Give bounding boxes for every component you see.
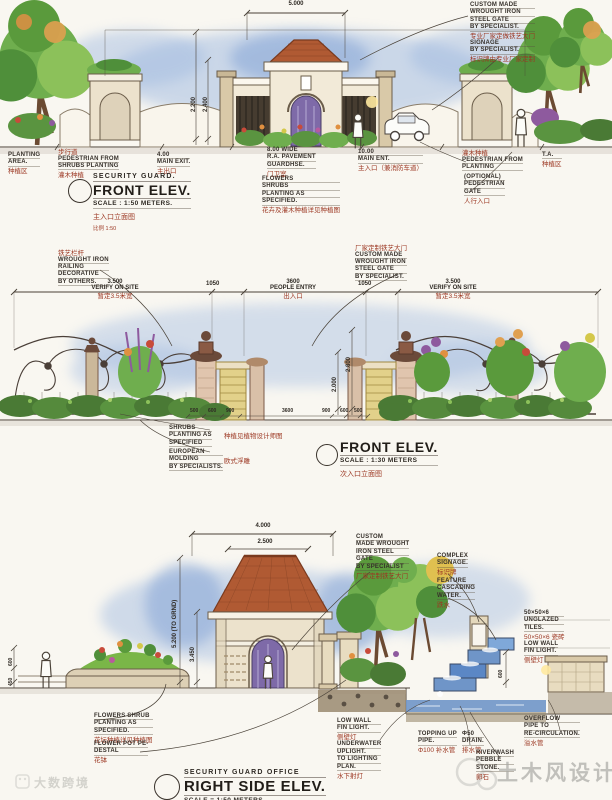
side-pavilion-left [87, 59, 142, 140]
dim-2500: 2.500 [240, 539, 290, 545]
label-flowers-shrub-planting: FLOWERS SHRUBPLANTING ASSPECIFIED.花坛种植详见… [94, 713, 153, 744]
annotation-line: 铁艺栏杆 [58, 250, 109, 257]
annotation-line: PLANTING AS [94, 720, 153, 727]
dim-1050-left: 1050 [206, 281, 219, 287]
watercolor-elevation-sheet: PLANTINGAREA.种植区 步行道PEDESTRIAN FROMSHRUB… [0, 0, 612, 800]
annotation-line: GUARDHSE. [267, 162, 316, 169]
annotation-line: 标识牌 [437, 569, 468, 576]
title-bullet-circle [154, 774, 180, 800]
annotation-line: 1050 [206, 281, 219, 287]
annotation-line: STEEL GATE [470, 17, 535, 24]
label-pedestrian-gate: (OPTIONAL)PEDESTRIANGATE人行入口 [464, 174, 505, 205]
annotation-line: 灌木种植 [462, 150, 523, 157]
annotation-line: DECORATIVE [58, 271, 109, 278]
annotation-line: 8.00 WIDE [267, 147, 316, 154]
annotation-line: 溢水管 [524, 740, 580, 747]
title-caption-cn-2: 次入口立面图 [340, 469, 438, 479]
annotation-line: BY SPECIALIST. [355, 274, 407, 281]
dim-people-entry: 3600PEOPLE ENTRY出入口 [248, 279, 338, 300]
annotation-line: SHRUBS PLANTING [58, 163, 119, 170]
annotation-line: OVERFLOW [524, 716, 580, 723]
annotation-line: GATE [464, 189, 505, 196]
annotation-line: DRAIN. [462, 738, 484, 745]
annotation-line: VERIFY ON SITE [70, 285, 160, 291]
annotation-line: FIN LIGHT. [337, 725, 381, 732]
dim-2400: 2.400 [203, 97, 209, 112]
annotation-line: 花钵 [94, 757, 148, 764]
label-custom-gate: CUSTOM MADEWROUGHT IRONSTEEL GATEBY SPEC… [470, 2, 535, 40]
annotation-line: 种植区 [542, 161, 562, 168]
annotation-line: 厂家定制铁艺大门 [356, 573, 409, 580]
wall-lamp-glow [541, 665, 551, 675]
label-low-wall-underwater-uplight: LOW WALLFIN LIGHT.侧壁灯UNDERWATERUPLIGHT.T… [337, 718, 381, 780]
annotation-line: 标识牌由专业厂家定制 [470, 56, 535, 63]
dim-600a: 600 [208, 408, 216, 414]
annotation-line: 1050 [358, 281, 371, 287]
annotation-line: CUSTOM MADE [355, 252, 407, 259]
annotation-line: VERIFY ON SITE [408, 285, 498, 291]
annotation-line: 主入口（兼消防车道） [358, 165, 423, 172]
label-shrubs-specified-cn: 种植见植物设计师图 [224, 431, 283, 440]
annotation-line: UNGLAZED [524, 617, 564, 624]
annotation-line: PEDESTRIAN [464, 181, 505, 188]
annotation-line: GATE [356, 556, 409, 563]
panel3-right-side-elev-art [0, 531, 612, 789]
dim-3500-left: 3.500VERIFY ON SITE暂定3.5米宽 [70, 279, 160, 300]
title-right-side-elev: RIGHT SIDE ELEV. [184, 778, 326, 796]
annotation-line: LOW WALL [337, 718, 381, 725]
annotation-line: DESTAL [94, 748, 148, 755]
annotation-line: COMPLEX [437, 553, 468, 560]
title-block-front-elev-main: SECURITY GUARD. FRONT ELEV. SCALE : 1:50… [93, 173, 191, 232]
label-topping-up-pipe: TOPPING UPPIPE.Φ100 补水管 [418, 731, 457, 754]
title-front-elev-2: FRONT ELEV. [340, 439, 438, 456]
watermark-logo-left [16, 775, 29, 788]
annotation-line: SPECIFIED. [94, 728, 153, 735]
title-scale: SCALE : 1:50 METERS. [93, 199, 191, 209]
annotation-line: WATER. [437, 593, 475, 600]
annotation-line: (OPTIONAL) [464, 174, 505, 181]
annotation-line: FIN LIGHT. [524, 648, 558, 655]
label-complex-signage: COMPLEXSIGNAGE.标识牌 [437, 553, 468, 576]
annotation-line: WROUGHT IRON [470, 9, 535, 16]
annotation-line: MAIN ENT. [358, 156, 423, 163]
annotation-line: SHRUBS [262, 183, 340, 190]
label-custom-gate-p3: CUSTOMMADE WROUGHTIRON STEELGATEBY SPECI… [356, 534, 409, 580]
annotation-line: UPLIGHT. [337, 749, 381, 756]
label-european-molding: EUROPEANMOLDINGBY SPECIALISTS. [169, 449, 223, 471]
title-scale-2: SCALE : 1:30 METERS [340, 456, 438, 466]
annotation-line: 水下射灯 [337, 773, 381, 780]
annotation-line: AREA. [8, 159, 40, 166]
dim-5000: 5.000 [278, 1, 314, 7]
annotation-line: EUROPEAN [169, 449, 223, 456]
side-pavilion-right [459, 59, 514, 140]
annotation-line: WROUGHT IRON [355, 259, 407, 266]
annotation-line: IRON STEEL [356, 549, 409, 556]
annotation-line: MAIN EXIT. [157, 159, 190, 166]
label-overflow-pipe: OVERFLOWPIPE TORE-CIRCULATION.溢水管 [524, 716, 580, 747]
annotation-line: PLAN. [337, 764, 381, 771]
title-caption-cn: 主入口立面图 [93, 212, 191, 222]
annotation-line: FLOWERS SHRUB [94, 713, 153, 720]
annotation-line: SIGNAGE [470, 40, 535, 47]
annotation-line: PEDESTRIAN FROM [58, 156, 119, 163]
annotation-line: 跌水 [437, 602, 475, 609]
label-signage: SIGNAGEBY SPECIALIST.标识牌由专业厂家定制 [470, 40, 535, 63]
label-main-exit: 4.00MAIN EXIT.主出口 [157, 152, 190, 175]
title-security-guard-office: SECURITY GUARD OFFICE [184, 769, 326, 778]
annotation-line: T.A. [542, 152, 562, 159]
title-bullet-circle [68, 179, 92, 203]
title-bullet-circle [316, 444, 338, 466]
annotation-line: PLANTING [8, 152, 40, 159]
annotation-line: 暂定3.5米宽 [408, 293, 498, 300]
annotation-line: BY SPECIALIST. [470, 47, 535, 54]
title-block-right-side-elev: SECURITY GUARD OFFICE RIGHT SIDE ELEV. S… [184, 769, 326, 800]
annotation-line: TILES. [524, 625, 564, 632]
dim-2000: 2.000 [332, 377, 338, 392]
dim-900a: 900 [226, 408, 234, 414]
dim-3500-right: 3.500VERIFY ON SITE暂定3.5米宽 [408, 279, 498, 300]
annotation-line: BY SPECIALIST. [470, 24, 535, 31]
title-block-front-elev-secondary: FRONT ELEV. SCALE : 1:30 METERS 次入口立面图 [340, 439, 438, 479]
annotation-line: WROUGHT IRON [58, 257, 109, 264]
annotation-line: Φ100 补水管 [418, 747, 457, 754]
label-guardhouse-pavement: 8.00 WIDER.A. PAVEMENTGUARDHSE.门卫室 [267, 147, 316, 178]
dim-1050-right: 1050 [358, 281, 371, 287]
annotation-line: SPECIFIED [169, 440, 212, 447]
watermark-bottom-right: 土木风设计 [497, 757, 612, 787]
annotation-line: Φ50 [462, 731, 484, 738]
annotation-line: SHRUBS [169, 425, 212, 432]
label-planting-area: PLANTINGAREA.种植区 [8, 152, 40, 175]
annotation-line: BY SPECIALISTS. [169, 464, 223, 471]
label-main-entry: 10.00MAIN ENT.主入口（兼消防车道） [358, 149, 423, 172]
label-flowers-shrubs: FLOWERSSHRUBSPLANTING ASSPECIFIED.花卉及灌木种… [262, 176, 340, 214]
watermark-bottom-left: 大数跨境 [34, 774, 90, 791]
annotation-line: 4.00 [157, 152, 190, 159]
annotation-line: TO LIGHTING [337, 756, 381, 763]
elevation-artwork [0, 0, 612, 800]
dim-500a: 500 [190, 408, 198, 414]
annotation-line: 出入口 [248, 293, 338, 300]
dim-600b: 600 [340, 408, 348, 414]
annotation-line: CUSTOM MADE [470, 2, 535, 9]
title-front-elev: FRONT ELEV. [93, 182, 191, 199]
annotation-line: R.A. PAVEMENT [267, 154, 316, 161]
dim-450-left: 450 [8, 678, 14, 686]
annotation-line: 侧壁灯 [524, 657, 558, 664]
annotation-line: 50×50×6 瓷砖 [524, 634, 564, 641]
person-figure [41, 652, 51, 688]
title-caption-cn2: 比例 1:50 [93, 224, 191, 232]
annotation-line: TOPPING UP [418, 731, 457, 738]
annotation-line: FLOWER POT PE- [94, 741, 148, 748]
annotation-line: PEOPLE ENTRY [248, 285, 338, 291]
dim-5200: 5.200 (TO GRND) [172, 600, 178, 648]
annotation-line: MOLDING [169, 456, 223, 463]
dim-2800: 2.800 [346, 357, 352, 372]
label-european-molding-cn: 欧式浮雕 [224, 456, 250, 465]
annotation-line: 步行道 [58, 149, 119, 156]
label-custom-gate-p2: 厂家定制铁艺大门CUSTOM MADEWROUGHT IRONSTEEL GAT… [355, 243, 407, 281]
title-security-guard: SECURITY GUARD. [93, 173, 191, 182]
annotation-line: PLANTING AS [262, 191, 340, 198]
low-wall [541, 656, 612, 714]
annotation-line: PLANTING [462, 164, 523, 171]
annotation-line: 种植见植物设计师图 [224, 433, 283, 440]
annotation-line: STEEL GATE [355, 266, 407, 273]
dim-2200: 2.200 [191, 97, 197, 112]
annotation-line: RAILING [58, 264, 109, 271]
annotation-line: PEDESTRIAN FROM [462, 157, 523, 164]
annotation-line: 暂定3.5米宽 [70, 293, 160, 300]
annotation-line: SPECIFIED. [262, 198, 340, 205]
annotation-line: MADE WROUGHT [356, 541, 409, 548]
label-cascading-water: FEATURECASCADINGWATER.跌水 [437, 578, 475, 609]
annotation-line: 50×50×6 [524, 610, 564, 617]
dim-3600: 3600 [282, 408, 293, 414]
annotation-line: FLOWERS [262, 176, 340, 183]
label-unglazed-tiles: 50×50×6UNGLAZEDTILES.50×50×6 瓷砖 [524, 610, 564, 641]
annotation-line: SIGNAGE. [437, 560, 468, 567]
annotation-line: 人行入口 [464, 198, 505, 205]
annotation-line: CASCADING [437, 585, 475, 592]
annotation-line: CUSTOM [356, 534, 409, 541]
annotation-line: UNDERWATER [337, 741, 381, 748]
label-flower-pot-pedestal: FLOWER POT PE-DESTAL花钵 [94, 741, 148, 764]
dim-600-right: 600 [498, 670, 504, 678]
annotation-line: PIPE. [418, 738, 457, 745]
annotation-line: PIPE TO [524, 723, 580, 730]
dim-3450: 3.450 [190, 647, 196, 662]
label-low-wall-fin-light-right: LOW WALLFIN LIGHT.侧壁灯 [524, 641, 558, 664]
dim-600-left: 600 [8, 658, 14, 666]
annotation-line: RE-CIRCULATION. [524, 731, 580, 738]
annotation-line: LOW WALL [524, 641, 558, 648]
dim-500b: 500 [354, 408, 362, 414]
label-ta-planting: T.A.种植区 [542, 152, 562, 168]
label-shrubs-specified: SHRUBSPLANTING ASSPECIFIED [169, 425, 212, 447]
dim-900b: 900 [322, 408, 330, 414]
annotation-line: PLANTING AS [169, 432, 212, 439]
title-scale-3: SCALE = 1:50 METERS [184, 796, 326, 800]
annotation-line: 种植区 [8, 168, 40, 175]
annotation-line: BY SPECIALIST [356, 564, 409, 571]
annotation-line: 侧壁灯 [337, 734, 381, 741]
annotation-line: 10.00 [358, 149, 423, 156]
lamp-glow [366, 96, 378, 108]
annotation-line: 花卉及灌木种植详见种植图 [262, 207, 340, 214]
annotation-line: 厂家定制铁艺大门 [355, 245, 407, 252]
dim-4000: 4.000 [238, 523, 288, 529]
annotation-line: FEATURE [437, 578, 475, 585]
annotation-line: 欧式浮雕 [224, 458, 250, 465]
signage-plaque [472, 624, 486, 646]
label-shrub-planting-right: 灌木种植PEDESTRIAN FROMPLANTING [462, 148, 523, 171]
